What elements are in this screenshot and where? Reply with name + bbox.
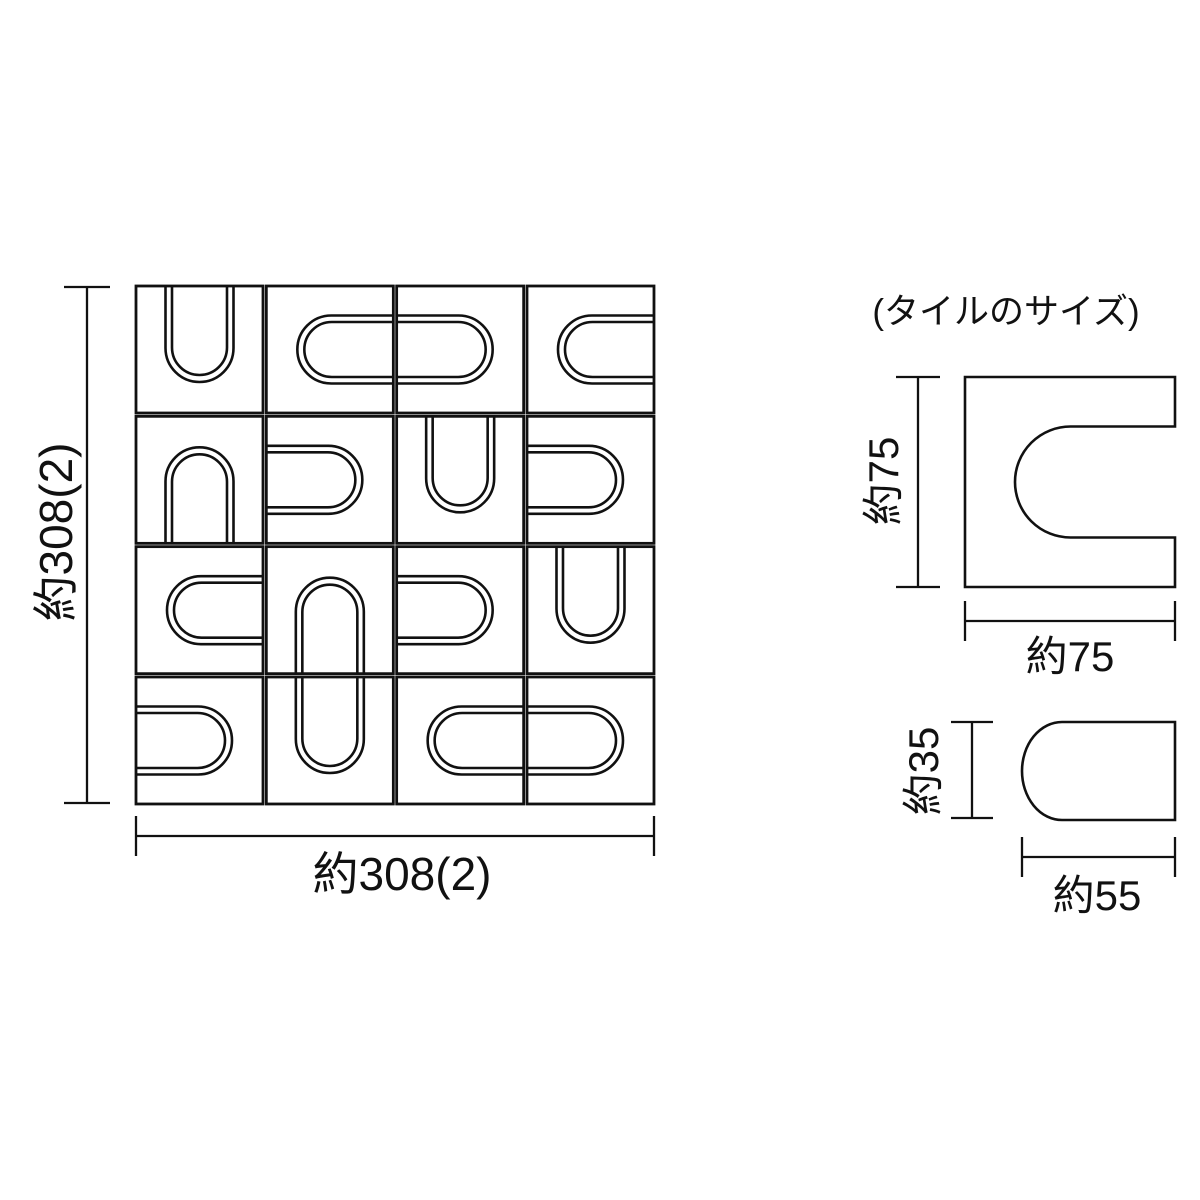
- piece-width-dimension-label: 約55: [1053, 875, 1142, 917]
- tile-size-section-title: (タイルのサイズ): [872, 295, 1139, 330]
- diagram-canvas: [0, 0, 1200, 1200]
- piece-height-dimension-label: 約35: [903, 727, 945, 816]
- tile-width-dimension-label: 約75: [1026, 636, 1115, 678]
- tile-spec-diagram: 約308(2) 約308(2) (タイルのサイズ) 約75 約75 約35 約5…: [0, 0, 1200, 1200]
- sheet-width-dimension-label: 約308(2): [313, 851, 492, 897]
- tile-height-dimension-label: 約75: [863, 437, 905, 526]
- sheet-height-dimension-label: 約308(2): [33, 443, 79, 622]
